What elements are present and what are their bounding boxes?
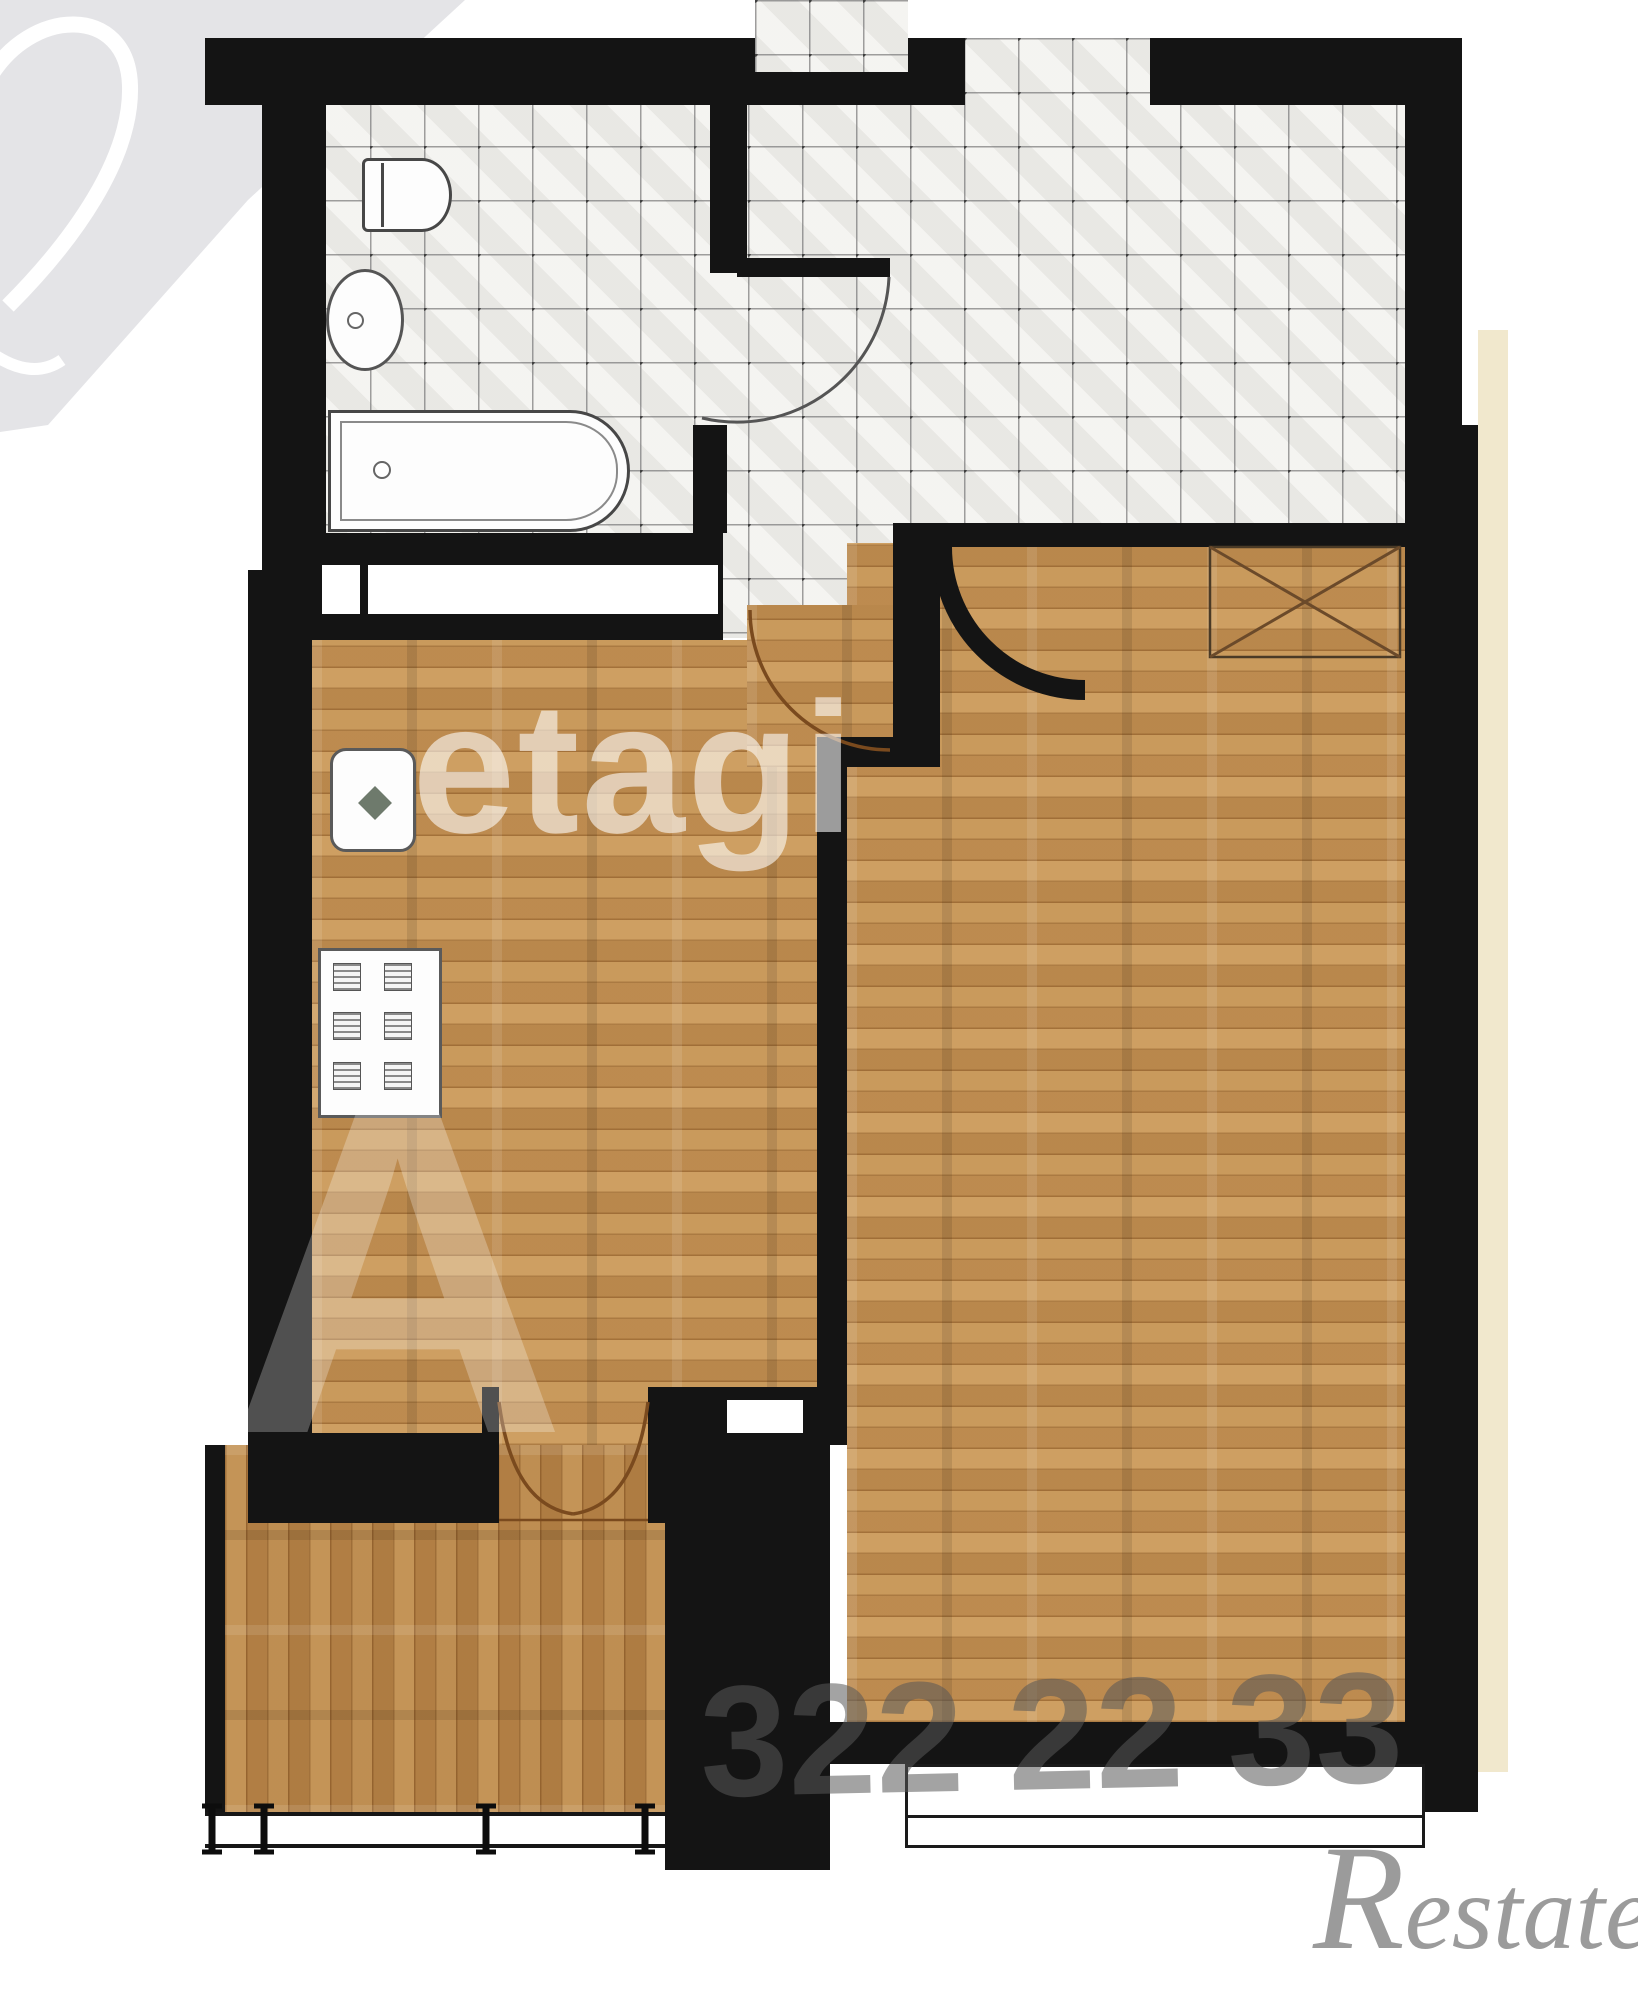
balcony-door-right-arc-icon bbox=[573, 1402, 648, 1514]
plan-symbols-overlay bbox=[0, 0, 1638, 2000]
balcony-door-left-arc-icon bbox=[499, 1402, 573, 1514]
glazing-mullion-icons bbox=[202, 1806, 655, 1852]
floor-plan-page: { "document": { "kind": "apartment floor… bbox=[0, 0, 1638, 2000]
bathroom-door-arc-icon bbox=[702, 277, 889, 422]
kitchen-door-arc-icon bbox=[750, 610, 890, 750]
mullion-icon bbox=[476, 1806, 496, 1852]
living-room-door-leaf-icon bbox=[942, 547, 1085, 690]
mullion-icon bbox=[202, 1806, 222, 1852]
mullion-icon bbox=[254, 1806, 274, 1852]
mullion-icon bbox=[635, 1806, 655, 1852]
wardrobe-crossed-box-icon bbox=[1210, 547, 1400, 657]
